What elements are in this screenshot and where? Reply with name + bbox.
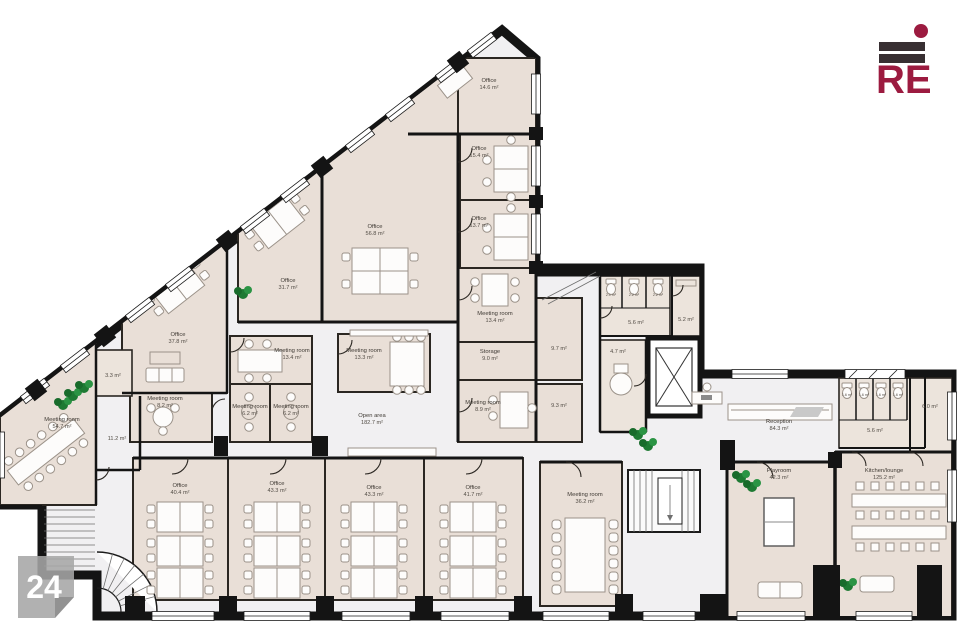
ping-pong-table [764, 498, 794, 546]
svg-text:Reception: Reception [766, 419, 792, 425]
svg-text:15.4 m²: 15.4 m² [470, 153, 489, 159]
logo: RE [876, 24, 932, 102]
svg-text:Office: Office [170, 332, 185, 338]
room-meeting-54-7 [0, 344, 96, 505]
svg-text:84.3 m²: 84.3 m² [770, 426, 789, 432]
room-label-name: Office [481, 78, 496, 84]
svg-text:Office: Office [367, 224, 382, 230]
svg-text:Office: Office [471, 146, 486, 152]
svg-text:43.3 m²: 43.3 m² [365, 492, 384, 498]
svg-text:13.3 m²: 13.3 m² [355, 355, 374, 361]
svg-text:9.0 m²: 9.0 m² [482, 356, 498, 362]
svg-text:Meeting room: Meeting room [274, 348, 310, 354]
svg-text:13.4 m²: 13.4 m² [283, 355, 302, 361]
svg-text:41.7 m²: 41.7 m² [464, 492, 483, 498]
svg-text:182.7 m²: 182.7 m² [361, 420, 383, 426]
svg-text:Meeting room: Meeting room [465, 400, 501, 406]
svg-text:3.3 m²: 3.3 m² [105, 373, 121, 379]
svg-text:1.6 m²: 1.6 m² [842, 393, 853, 397]
svg-text:2.2 m²: 2.2 m² [653, 293, 664, 297]
svg-text:Meeting room: Meeting room [477, 311, 513, 317]
svg-text:Meeting room: Meeting room [44, 417, 80, 423]
svg-text:42.3 m²: 42.3 m² [770, 475, 789, 481]
svg-text:13.7 m²: 13.7 m² [470, 223, 489, 229]
svg-text:Storage: Storage [480, 349, 500, 355]
svg-text:2.2 m²: 2.2 m² [629, 293, 640, 297]
svg-text:2.1 m²: 2.1 m² [606, 293, 617, 297]
svg-text:Meeting room: Meeting room [147, 396, 183, 402]
svg-text:6.0 m²: 6.0 m² [922, 404, 938, 410]
svg-text:37.8 m²: 37.8 m² [169, 339, 188, 345]
svg-text:8.9 m²: 8.9 m² [475, 407, 491, 413]
svg-text:6.2 m²: 6.2 m² [242, 411, 258, 417]
svg-text:Meeting room: Meeting room [232, 404, 268, 410]
svg-text:125.2 m²: 125.2 m² [873, 475, 895, 481]
svg-text:36.2 m²: 36.2 m² [576, 499, 595, 505]
page-number: 24 [26, 569, 62, 605]
svg-text:56.8 m²: 56.8 m² [366, 231, 385, 237]
svg-text:31.7 m²: 31.7 m² [279, 285, 298, 291]
svg-text:4.7 m²: 4.7 m² [610, 349, 626, 355]
svg-text:Playroom: Playroom [767, 468, 792, 474]
svg-text:5.6 m²: 5.6 m² [867, 428, 883, 434]
svg-text:43.3 m²: 43.3 m² [268, 488, 287, 494]
svg-text:11.2 m²: 11.2 m² [108, 436, 127, 442]
svg-text:Office: Office [172, 483, 187, 489]
logo-text: RE [876, 58, 932, 102]
svg-text:13.4 m²: 13.4 m² [486, 318, 505, 324]
svg-text:1.6 m²: 1.6 m² [876, 393, 887, 397]
svg-text:9.7 m²: 9.7 m² [551, 346, 567, 352]
svg-text:8.2 m²: 8.2 m² [157, 403, 173, 409]
svg-text:Office: Office [269, 481, 284, 487]
svg-text:1.6 m²: 1.6 m² [893, 393, 904, 397]
svg-text:40.4 m²: 40.4 m² [171, 490, 190, 496]
svg-text:5.2 m²: 5.2 m² [678, 317, 694, 323]
svg-text:Office: Office [465, 485, 480, 491]
svg-text:Meeting room: Meeting room [567, 492, 603, 498]
floor-plan: Office 14.6 m² Office 15.4 m² Office 13.… [0, 0, 960, 640]
svg-text:Office: Office [366, 485, 381, 491]
svg-text:Office: Office [280, 278, 295, 284]
stair-icon [628, 470, 700, 532]
svg-text:1.6 m²: 1.6 m² [859, 393, 870, 397]
svg-text:Office: Office [471, 216, 486, 222]
room-9-3 [536, 384, 582, 442]
svg-text:Meeting room: Meeting room [346, 348, 382, 354]
svg-text:Open area: Open area [358, 413, 386, 419]
logo-bar [879, 42, 925, 51]
floor-plan-page: Office 14.6 m² Office 15.4 m² Office 13.… [0, 0, 960, 640]
room-9-7 [536, 298, 582, 380]
logo-dot [914, 24, 928, 38]
svg-text:Meeting room: Meeting room [273, 404, 309, 410]
svg-text:Kitchen/lounge: Kitchen/lounge [865, 468, 903, 474]
room-6-0 [910, 378, 952, 452]
svg-text:5.6 m²: 5.6 m² [628, 320, 644, 326]
svg-text:6.2 m²: 6.2 m² [283, 411, 299, 417]
room-label-area: 14.6 m² [480, 85, 499, 91]
svg-text:54.7 m²: 54.7 m² [53, 424, 72, 430]
reception-desk [728, 404, 832, 420]
page-number-badge: 24 [18, 556, 74, 618]
svg-text:9.3 m²: 9.3 m² [551, 403, 567, 409]
